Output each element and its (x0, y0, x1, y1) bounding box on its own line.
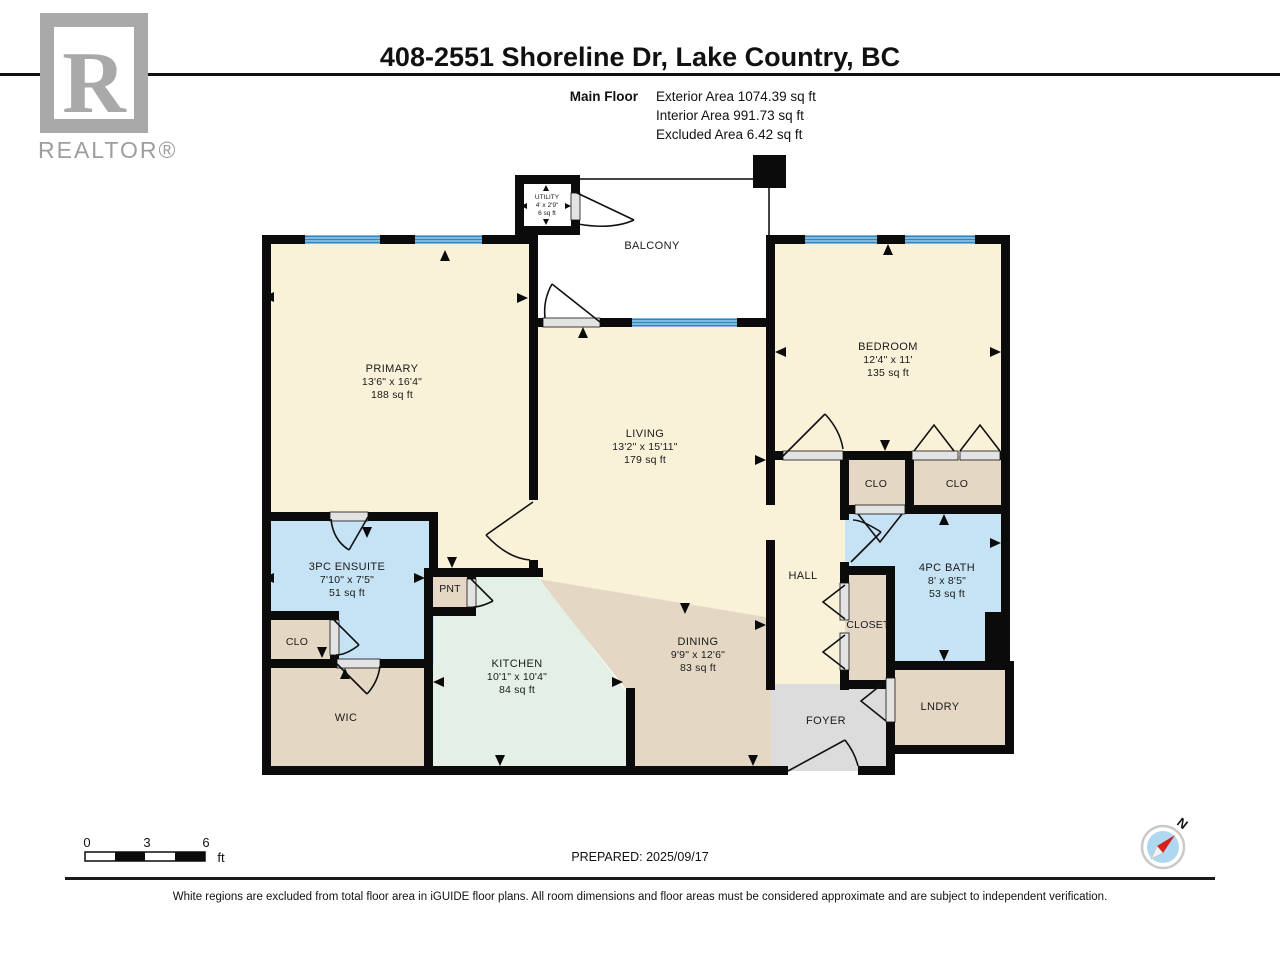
bedroom-closet-slab-1 (912, 451, 958, 460)
balcony-outline (580, 155, 786, 235)
ensuite-dim: 7'10" x 7'5" (320, 574, 374, 586)
room-living (533, 322, 771, 618)
clo-door-slab (330, 620, 339, 655)
bedroom-door-slab (783, 451, 843, 460)
realtor-logo-letter: R (62, 35, 127, 132)
utility-door-swing (575, 192, 634, 226)
closet-label: CLOSET (846, 619, 890, 631)
window-bedroom-2 (905, 235, 975, 244)
prepared-date: PREPARED: 2025/09/17 (571, 850, 708, 864)
primary-label: PRIMARY (366, 363, 419, 375)
lndry-door-slab (886, 678, 895, 722)
window-bedroom-1 (805, 235, 877, 244)
primary-area: 188 sq ft (371, 389, 413, 401)
bath-dim: 8' x 8'5" (928, 575, 966, 587)
ensuite-area: 51 sq ft (329, 587, 365, 599)
ensuite-label: 3PC ENSUITE (309, 561, 386, 573)
balcony-door-swing (545, 284, 600, 322)
bedroom-label: BEDROOM (858, 341, 918, 353)
excluded-area: Excluded Area 6.42 sq ft (656, 127, 803, 142)
kitchen-dim: 10'1" x 10'4" (487, 671, 547, 683)
kitchen-area: 84 sq ft (499, 684, 535, 696)
bath-area: 53 sq ft (929, 588, 965, 600)
header: 408-2551 Shoreline Dr, Lake Country, BC … (0, 42, 1280, 142)
living-dim: 13'2" x 15'11" (612, 441, 678, 453)
clo-hall-label: CLO (865, 478, 887, 490)
floor-plan-page: 408-2551 Shoreline Dr, Lake Country, BC … (0, 0, 1280, 960)
living-area: 179 sq ft (624, 454, 666, 466)
structural-post (753, 155, 786, 188)
window-primary-1 (305, 235, 380, 244)
scale-tick-3: 3 (143, 835, 150, 850)
footer-note: White regions are excluded from total fl… (173, 891, 1108, 903)
footer-rule (65, 877, 1215, 880)
realtor-logo: R REALTOR® (38, 13, 177, 163)
bedroom-closet-slab-2 (960, 451, 1000, 460)
clo-ensuite-label: CLO (286, 636, 308, 648)
bath-bifold-slab (855, 505, 905, 514)
exterior-area: Exterior Area 1074.39 sq ft (656, 89, 816, 104)
bedroom-dim: 12'4" x 11' (863, 354, 912, 366)
utility-label: UTILITY (535, 194, 560, 201)
pnt-label: PNT (439, 583, 461, 595)
living-label: LIVING (626, 428, 664, 440)
scale-unit: ft (217, 850, 225, 865)
interior-area: Interior Area 991.73 sq ft (656, 108, 804, 123)
hall-label: HALL (788, 570, 817, 582)
wic-label: WIC (335, 712, 358, 724)
scale-bar: 0 3 6 ft (83, 835, 225, 865)
header-rule (0, 73, 1280, 76)
balcony-door-slab (543, 318, 600, 327)
bedroom-area: 135 sq ft (867, 367, 909, 379)
foyer-label: FOYER (806, 715, 846, 727)
dining-label: DINING (678, 636, 719, 648)
window-primary-2 (415, 235, 482, 244)
balcony-label: BALCONY (624, 240, 680, 252)
lndry-label: LNDRY (920, 701, 959, 713)
wic-door-slab (337, 659, 380, 668)
dining-area: 83 sq ft (680, 662, 716, 674)
footer: White regions are excluded from total fl… (65, 877, 1215, 903)
compass-icon: N (1142, 815, 1191, 868)
scale-tick-0: 0 (83, 835, 90, 850)
kitchen-label: KITCHEN (491, 658, 542, 670)
utility-area: 6 sq ft (538, 210, 556, 217)
realtor-brand-text: REALTOR® (38, 137, 177, 163)
page-title: 408-2551 Shoreline Dr, Lake Country, BC (380, 42, 900, 72)
scale-tick-6: 6 (202, 835, 209, 850)
clo-bedroom-label: CLO (946, 478, 968, 490)
ensuite-door-slab (330, 512, 368, 521)
utility-dim: 4' x 2'9" (536, 202, 559, 209)
utility-door-slab (571, 193, 580, 220)
bath-label: 4PC BATH (919, 562, 975, 574)
window-living (632, 318, 737, 327)
floor-plan-image: 408-2551 Shoreline Dr, Lake Country, BC … (0, 0, 1280, 960)
primary-dim: 13'6" x 16'4" (362, 376, 422, 388)
floor-label: Main Floor (570, 89, 639, 104)
dining-dim: 9'9" x 12'6" (671, 649, 725, 661)
room-foyer (771, 684, 886, 771)
